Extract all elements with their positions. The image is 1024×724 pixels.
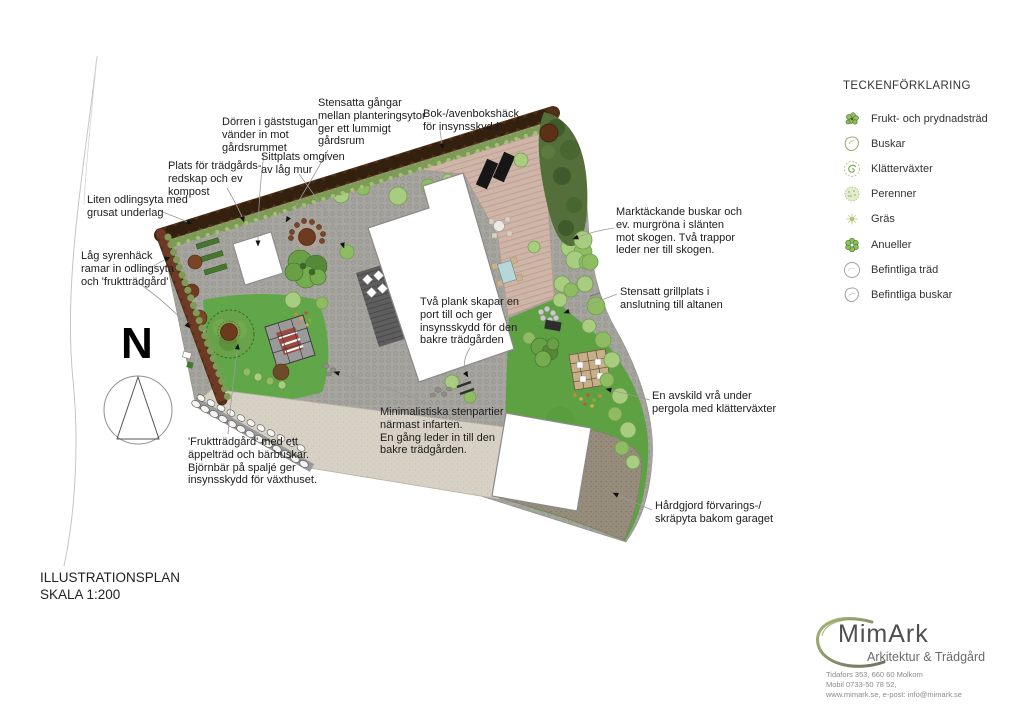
- annotation-storage-yard: Hårdgjord förvarings-/ skräpyta bakom ga…: [655, 500, 800, 526]
- north-label: N: [121, 322, 153, 366]
- mulch-bed: [273, 364, 289, 380]
- legend-item-existing-shrubs: Befintliga buskar: [843, 282, 1023, 307]
- annotation-minimal-stone: Minimalistiska stenpartier närmast infar…: [380, 406, 530, 457]
- title-block: ILLUSTRATIONSPLAN SKALA 1:200: [40, 570, 180, 604]
- legend-item-grass: Gräs: [843, 207, 1023, 232]
- legend-item-existing-trees: Befintliga träd: [843, 257, 1023, 282]
- annual-icon: [843, 236, 861, 254]
- annotation-pergola-nook: En avskild vrå under pergola med klätter…: [652, 390, 797, 416]
- legend-label: Befintliga buskar: [871, 289, 952, 301]
- annotation-two-planks: Två plank skapar en port till och ger in…: [420, 296, 538, 347]
- legend-label: Anueller: [871, 239, 911, 251]
- north-compass: [104, 376, 172, 444]
- legend-item-shrubs: Buskar: [843, 131, 1023, 156]
- legend-item-perennials: Perenner: [843, 182, 1023, 207]
- annotation-small-bed: Liten odlingsyta med grusat underlag: [87, 194, 207, 220]
- grass-icon: [843, 210, 861, 228]
- annotation-fruit-garden: 'Fruktträdgård' med ett äppelträd och bä…: [188, 436, 338, 487]
- legend-item-climbers: Klätterväxter: [843, 156, 1023, 181]
- annotation-ground-cover: Marktäckande buskar och ev. murgröna i s…: [616, 206, 756, 257]
- annotation-tool-compost: Plats för trädgårds- redskap och ev komp…: [168, 160, 283, 198]
- plan-scale: SKALA 1:200: [40, 587, 180, 604]
- legend-item-fruit-tree: Frukt- och prydnadsträd: [843, 106, 1023, 131]
- fruit-tree-icon: [843, 110, 861, 128]
- illustration-plan-page: Dörren i gäststugan vänder in mot gårdsr…: [0, 0, 1024, 724]
- logo-name: MimArk: [838, 620, 929, 649]
- legend-label: Buskar: [871, 138, 905, 150]
- legend-label: Klätterväxter: [871, 163, 933, 175]
- legend-label: Gräs: [871, 213, 895, 225]
- logo-contact: Tidafors 353, 660 60 Molkom Mobil 0733-5…: [826, 670, 962, 699]
- shrub-icon: [843, 135, 861, 153]
- climber-icon: [843, 160, 861, 178]
- annotation-beech-hedge: Bok-/avenbokshäck för insynsskydd: [423, 108, 548, 134]
- legend-label: Frukt- och prydnadsträd: [871, 113, 988, 125]
- existing-tree-icon: [843, 261, 861, 279]
- legend-item-annuals: Anueller: [843, 232, 1023, 257]
- logo-tagline: Arkitektur & Trädgård: [867, 650, 985, 664]
- company-logo: MimArk Arkitektur & Trädgård Tidafors 35…: [812, 598, 1022, 708]
- road-line: [64, 56, 97, 566]
- legend-label: Befintliga träd: [871, 264, 938, 276]
- annotation-grill-spot: Stensatt grillplats i anslutning till al…: [620, 286, 745, 312]
- annotation-lilac-hedge: Låg syrenhäck ramar in odlingsyta och 'f…: [81, 250, 201, 288]
- perennial-icon: [843, 185, 861, 203]
- existing-shrub-icon: [843, 286, 861, 304]
- legend-label: Perenner: [871, 188, 916, 200]
- legend-title: TECKENFÖRKLARING: [843, 80, 1023, 92]
- plan-title: ILLUSTRATIONSPLAN: [40, 570, 180, 587]
- legend: TECKENFÖRKLARING Frukt- och prydnadsträd…: [843, 80, 1023, 308]
